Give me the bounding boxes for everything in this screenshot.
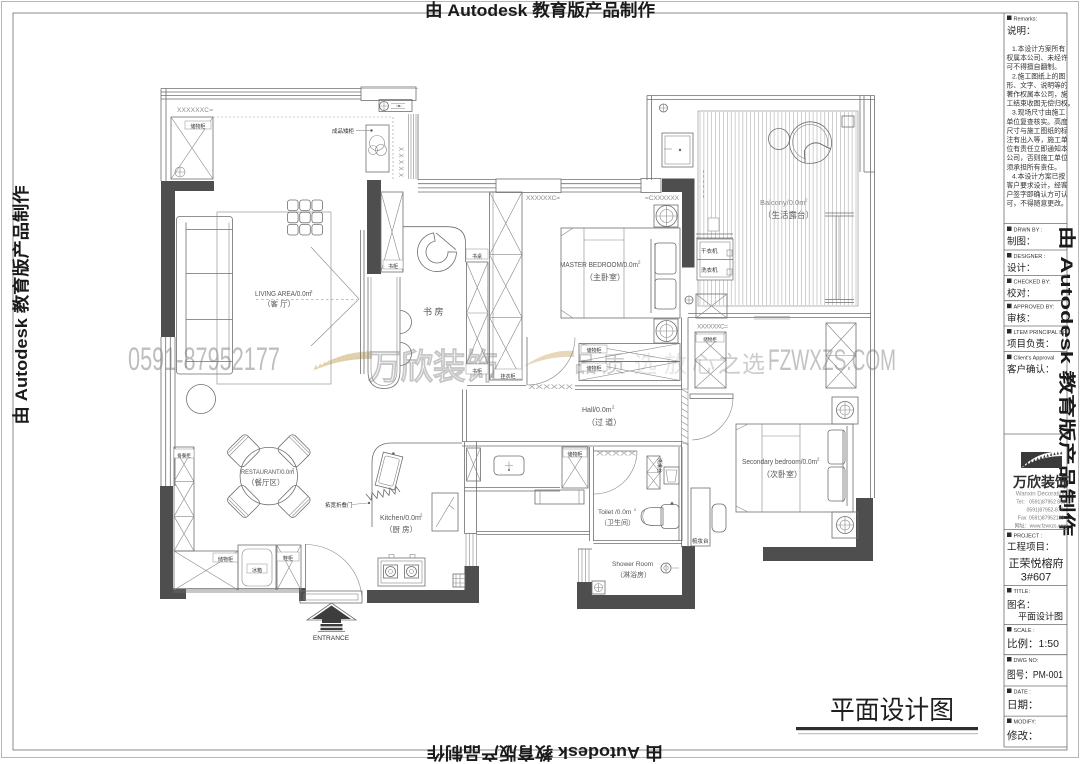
svg-text:说明：: 说明：	[1007, 25, 1036, 37]
svg-text:DATE :: DATE :	[1014, 690, 1032, 696]
svg-text:Toilet /0.0m: Toilet /0.0m	[598, 509, 631, 516]
svg-text:可，不得随意更改。: 可，不得随意更改。	[1007, 199, 1068, 208]
svg-text:XXXXX: XXXXX	[596, 452, 636, 458]
svg-text:洗漱台: 洗漱台	[656, 458, 663, 473]
svg-text:单位复查核实。高度: 单位复查核实。高度	[1007, 117, 1068, 126]
svg-text:网址：www.fzwxzs.com: 网址：www.fzwxzs.com	[1015, 523, 1068, 530]
svg-text:拓宽折叠门: 拓宽折叠门	[325, 501, 353, 509]
svg-text:书柜: 书柜	[388, 263, 398, 270]
svg-text:（客 厅）: （客 厅）	[263, 299, 295, 309]
svg-text:平面设计图: 平面设计图	[1018, 611, 1063, 622]
svg-text:校对：: 校对：	[1007, 288, 1036, 300]
svg-text:图号：PM-001: 图号：PM-001	[1007, 669, 1063, 681]
svg-text:尺寸与施工图纸的标: 尺寸与施工图纸的标	[1007, 126, 1068, 135]
svg-text:鞋柜: 鞋柜	[283, 555, 293, 562]
svg-text:XXXXXX: XXXXXX	[528, 385, 573, 391]
svg-text:梳妆台: 梳妆台	[692, 537, 709, 545]
svg-text:可不得擅自翻制。: 可不得擅自翻制。	[1007, 62, 1061, 71]
svg-text:XXXXXXC=: XXXXXXC=	[177, 107, 213, 114]
svg-text:修改：: 修改：	[1007, 729, 1039, 742]
svg-text:项目负责：: 项目负责：	[1007, 338, 1055, 350]
svg-text:PROJECT :: PROJECT :	[1014, 534, 1043, 540]
svg-text:储物柜: 储物柜	[190, 123, 205, 130]
svg-text:由 Autodesk 教育版产品制作: 由 Autodesk 教育版产品制作	[427, 743, 663, 763]
svg-text:著作权属本公司，施: 著作权属本公司，施	[1007, 90, 1068, 99]
svg-text:=CXXXXXX: =CXXXXXX	[645, 195, 680, 202]
svg-text:制图：: 制图：	[1007, 236, 1036, 248]
svg-text:储物柜: 储物柜	[586, 365, 601, 372]
svg-text:储物柜: 储物柜	[586, 347, 601, 354]
svg-text:Kitchen/0.0m: Kitchen/0.0m	[380, 515, 421, 522]
svg-text:选: 选	[634, 351, 657, 377]
svg-text:DRWN BY :: DRWN BY :	[1014, 228, 1043, 234]
svg-text:Balcony/0.0m: Balcony/0.0m	[760, 198, 805, 207]
svg-text:洗衣机: 洗衣机	[701, 266, 718, 274]
svg-text:冰箱: 冰箱	[252, 567, 262, 574]
svg-text:LTEM PRINCIPAL BC: LTEM PRINCIPAL BC	[1014, 330, 1067, 336]
svg-text:（次卧室）: （次卧室）	[762, 469, 802, 479]
svg-text:权属本公司、未经许: 权属本公司、未经许	[1007, 53, 1068, 62]
svg-text:书 房: 书 房	[423, 306, 444, 317]
svg-text:公司，否则施工单位: 公司，否则施工单位	[1007, 153, 1068, 162]
svg-text:Secondary bedroom/0.0m: Secondary bedroom/0.0m	[742, 459, 817, 466]
svg-text:成品矮柜: 成品矮柜	[332, 127, 355, 135]
svg-text:（过 道）: （过 道）	[587, 417, 621, 427]
svg-text:APPROVED BY:: APPROVED BY:	[1014, 305, 1055, 311]
svg-text:工程项目：: 工程项目：	[1007, 542, 1055, 553]
svg-text:备餐柜: 备餐柜	[177, 452, 191, 459]
svg-text:注有出入等，施工单: 注有出入等，施工单	[1007, 135, 1068, 144]
svg-text:XXXXXXC=: XXXXXXC=	[697, 324, 728, 331]
svg-text:Remarks:: Remarks:	[1014, 17, 1038, 23]
svg-text:0591-87952177: 0591-87952177	[128, 341, 280, 377]
svg-text:（餐厅区）: （餐厅区）	[247, 478, 285, 487]
svg-text:须承担所有责任。: 须承担所有责任。	[1007, 162, 1061, 171]
svg-text:储物柜: 储物柜	[567, 451, 582, 458]
svg-text:形、文字、说明等的: 形、文字、说明等的	[1007, 80, 1068, 89]
svg-text:DWG NO:: DWG NO:	[1014, 658, 1039, 664]
svg-text:TITLE:: TITLE:	[1014, 589, 1031, 595]
svg-text:客户要求设计，经客: 客户要求设计，经客	[1007, 181, 1068, 190]
svg-text:工结束收图无偿归权。: 工结束收图无偿归权。	[1007, 99, 1075, 108]
svg-text:储物柜: 储物柜	[703, 336, 717, 343]
svg-text:4.本设计方案已按: 4.本设计方案已按	[1012, 171, 1065, 180]
svg-text:（生活露台）: （生活露台）	[763, 210, 814, 220]
svg-text:3.现场尺寸由施工: 3.现场尺寸由施工	[1012, 108, 1065, 117]
svg-text:万欣装饰: 万欣装饰	[1012, 474, 1069, 490]
svg-text:客户确认：: 客户确认：	[1007, 364, 1055, 376]
svg-text:（淋浴房）: （淋浴房）	[616, 570, 651, 579]
svg-text:选: 选	[742, 351, 765, 377]
svg-text:日期：: 日期：	[1007, 699, 1039, 711]
svg-text:SCALE :: SCALE :	[1014, 628, 1036, 634]
svg-text:设计：: 设计：	[1007, 262, 1036, 274]
svg-text:ENTRANCE: ENTRANCE	[313, 635, 350, 642]
svg-text:正荣悦榕府: 正荣悦榕府	[1009, 556, 1064, 570]
svg-text:挂衣柜: 挂衣柜	[500, 373, 515, 380]
svg-text:Shower Room: Shower Room	[612, 561, 653, 568]
svg-text:Wanxin Decoration: Wanxin Decoration	[1016, 492, 1066, 498]
svg-text:MASTER BEDROOM/0.0m: MASTER BEDROOM/0.0m	[560, 260, 638, 269]
svg-text:审核：: 审核：	[1007, 313, 1036, 325]
svg-text:2.施工图纸上的图: 2.施工图纸上的图	[1012, 71, 1065, 80]
svg-text:户签字即确认方可认: 户签字即确认方可认	[1007, 190, 1068, 199]
svg-text:由 Autodesk 教育版产品制作: 由 Autodesk 教育版产品制作	[425, 0, 655, 20]
svg-text:MODIFY:: MODIFY:	[1014, 720, 1037, 726]
svg-text:1.本设计方案所有: 1.本设计方案所有	[1012, 44, 1065, 53]
svg-text:DESIGNER :: DESIGNER :	[1014, 254, 1046, 260]
svg-text:3#607: 3#607	[1021, 572, 1052, 584]
svg-text:CHECKED BY:: CHECKED BY:	[1014, 280, 1051, 286]
svg-text:（卫生间）: （卫生间）	[600, 518, 635, 527]
svg-text:（主卧室）: （主卧室）	[585, 272, 625, 282]
svg-text:0591)87952-877: 0591)87952-877	[1027, 508, 1064, 514]
svg-text:（厨 房）: （厨 房）	[385, 524, 417, 534]
svg-text:RESTAURANT/0.0m: RESTAURANT/0.0m	[241, 469, 294, 476]
svg-text:比例：1:50: 比例：1:50	[1007, 637, 1059, 650]
svg-text:位有责任立即通知本: 位有责任立即通知本	[1007, 144, 1068, 153]
svg-text:平面设计图: 平面设计图	[830, 695, 954, 725]
svg-text:储物柜: 储物柜	[218, 556, 233, 563]
svg-text:图名：: 图名：	[1007, 599, 1036, 611]
svg-text:干衣机: 干衣机	[701, 247, 718, 255]
svg-text:Hall/0.0m: Hall/0.0m	[582, 407, 612, 414]
svg-text:书桌: 书桌	[472, 253, 482, 260]
svg-text:由 Autodesk 教育版产品制作: 由 Autodesk 教育版产品制作	[11, 186, 31, 425]
svg-text:Fax: 0591)87952189: Fax: 0591)87952189	[1018, 516, 1064, 522]
svg-text:书柜: 书柜	[472, 368, 482, 375]
svg-text:LIVING AREA/0.0m: LIVING AREA/0.0m	[255, 291, 311, 298]
svg-text:XXXXXXC=: XXXXXXC=	[526, 195, 560, 202]
svg-text:Client's Approval: Client's Approval	[1014, 356, 1055, 362]
svg-text:Tel： 0591)87952 868: Tel： 0591)87952 868	[1016, 500, 1065, 506]
